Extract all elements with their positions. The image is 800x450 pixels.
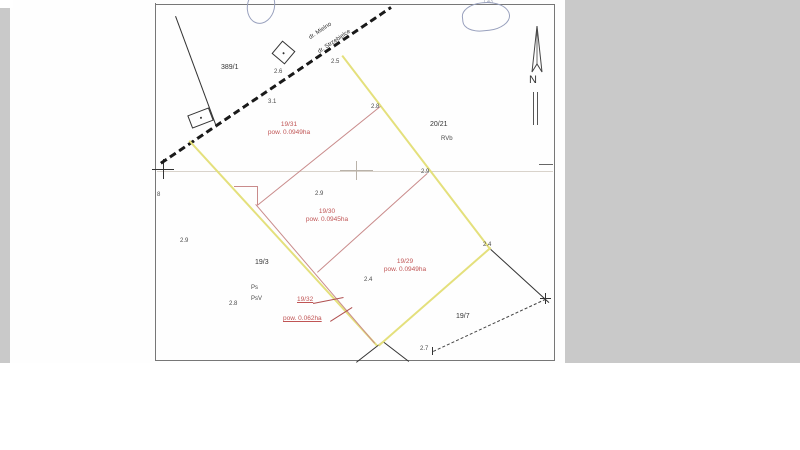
parcel-area: pow. 0.0949ha [370,266,440,274]
map-frame-left [155,3,156,361]
parcel-label-19-7: 19/7 [456,313,470,320]
subdivision-line-red [234,186,258,187]
land-class-label: PsV [251,296,262,303]
measure-label: 2.4 [364,277,372,284]
land-class-label: Ps [251,285,258,292]
measure-label: 2.6 [274,69,282,76]
measure-label: 2.9 [180,238,188,245]
parcel-label-19-31: 19/31 pow. 0.0949ha [254,121,324,137]
north-arrow-icon [528,24,546,76]
parcel-area: pow. 0.0945ha [292,216,362,224]
parcel-label-19-3: 19/3 [255,259,269,266]
edge-tick [539,164,553,165]
parcel-id: 19/29 [370,258,440,266]
measure-label: 3.1 [268,99,276,106]
map-frame-right [554,4,555,361]
parcel-id: 19/30 [292,208,362,216]
grid-cross-icon [356,161,357,180]
handwritten-mark: 1 43 [483,0,493,6]
building-dot-icon [199,117,202,120]
north-arrow-base-line [533,92,534,125]
parcel-area: pow. 0.0949ha [254,129,324,137]
boundary-cross-icon [545,293,546,304]
north-label: N [529,74,537,86]
north-arrow-base-line [537,92,538,125]
map-frame-bottom [155,360,555,361]
parcel-label-19-29: 19/29 pow. 0.0949ha [370,258,440,274]
boundary-tick [432,347,433,355]
measure-label: 2.7 [420,346,428,353]
parcel-area-19-32: pow. 0.062ha [283,315,322,322]
subdivision-line-red [257,186,258,205]
cadastral-map-scan: dr. Mielno dr. Strzebielce 1 43 N 389/1 … [0,0,800,450]
page-corner [0,0,13,8]
measure-label: 2.9 [315,191,323,198]
parcel-id: 19/31 [254,121,324,129]
parcel-label-20-21: 20/21 [430,121,448,128]
parcel-label-19-32: 19/32 [297,296,313,303]
measure-label: 2.8 [229,301,237,308]
parcel-label-19-30: 19/30 pow. 0.0945ha [292,208,362,224]
measure-label: 2.4 [483,242,491,249]
measure-label: 2.8 [371,104,379,111]
parcel-label-389-1: 389/1 [221,64,239,71]
land-class-label: RVb [441,136,453,143]
measure-label: 2.5 [331,59,339,66]
edge-mark-label: 8 [157,192,160,199]
measure-label: 2.9 [421,169,429,176]
building-dot-icon [282,51,285,54]
